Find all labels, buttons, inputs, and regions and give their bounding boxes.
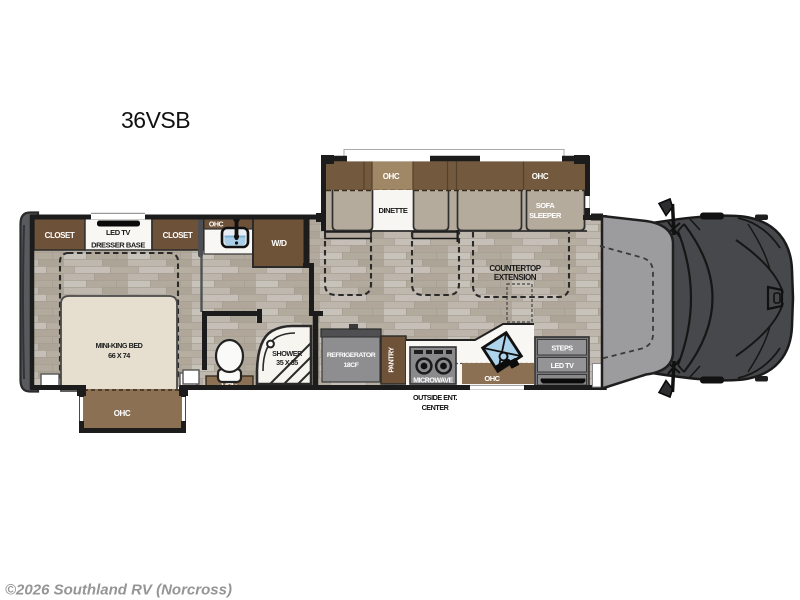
svg-text:COUNTERTOP: COUNTERTOP: [489, 264, 541, 273]
svg-text:OHC: OHC: [484, 374, 500, 383]
svg-text:OUTSIDE ENT.: OUTSIDE ENT.: [413, 393, 458, 402]
svg-text:EXTENSION: EXTENSION: [494, 273, 537, 282]
svg-text:W/D: W/D: [271, 238, 286, 248]
svg-text:CLOSET: CLOSET: [163, 231, 193, 240]
svg-text:OHC: OHC: [383, 172, 400, 181]
svg-text:SOFA: SOFA: [536, 201, 556, 210]
svg-text:©2026 Southland RV (Norcross): ©2026 Southland RV (Norcross): [5, 582, 232, 599]
svg-text:35 X 35: 35 X 35: [276, 358, 298, 367]
svg-text:CENTER: CENTER: [422, 403, 450, 412]
svg-text:REFRIGERATOR: REFRIGERATOR: [327, 352, 376, 359]
svg-text:DRESSER BASE: DRESSER BASE: [91, 241, 145, 250]
svg-text:36VSB: 36VSB: [121, 107, 190, 133]
svg-text:STEPS: STEPS: [551, 344, 573, 353]
svg-text:LED TV: LED TV: [106, 228, 130, 237]
svg-text:MICROWAVE: MICROWAVE: [413, 378, 453, 385]
svg-text:DINETTE: DINETTE: [379, 206, 408, 215]
svg-text:MINI-KING BED: MINI-KING BED: [96, 341, 143, 350]
svg-text:SHOWER: SHOWER: [272, 349, 303, 358]
svg-text:66 X 74: 66 X 74: [108, 351, 130, 360]
svg-text:SLEEPER: SLEEPER: [529, 211, 562, 220]
svg-text:OHC: OHC: [532, 172, 549, 181]
svg-text:PANTRY: PANTRY: [389, 347, 396, 373]
svg-text:OHC: OHC: [114, 409, 131, 418]
svg-text:OHC: OHC: [209, 222, 224, 229]
svg-text:CLOSET: CLOSET: [45, 231, 75, 240]
svg-text:LED TV: LED TV: [551, 361, 575, 370]
svg-text:18CF: 18CF: [344, 362, 359, 369]
